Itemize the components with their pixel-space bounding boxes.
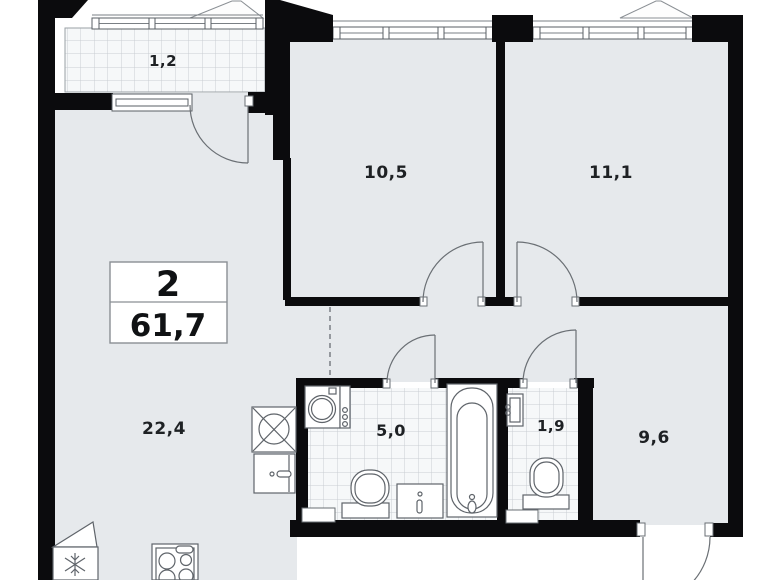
total-area-label: 61,7 — [130, 308, 207, 344]
wall-bottom-right — [710, 523, 743, 537]
bedroom2-area-label: 11,1 — [589, 163, 633, 183]
info-box: 2 61,7 — [110, 262, 227, 344]
washing-machine — [305, 386, 350, 428]
wall-bottom-band — [290, 520, 640, 537]
balcony-area-label: 1,2 — [149, 52, 177, 70]
wc-wall-niche — [506, 510, 538, 523]
rooms-count-label: 2 — [156, 265, 180, 305]
kitchen-sink — [252, 407, 296, 452]
wall-between-doors — [483, 297, 517, 306]
wall-left — [38, 18, 55, 580]
wall-under-balcony — [55, 93, 113, 110]
living-kitchen-area-label: 22,4 — [142, 419, 186, 439]
floor-plan: 2 61,7 1,2 10,5 11,1 22,4 5,0 1,9 9,6 — [0, 0, 780, 580]
bedroom1-area-label: 10,5 — [364, 163, 408, 183]
wall-bedroom2-bottom — [577, 297, 728, 306]
kitchen-cabinet — [254, 454, 295, 493]
floor-hall-room — [588, 300, 730, 525]
bathroom-area-label: 5,0 — [376, 421, 406, 440]
wall-wc-right — [578, 378, 593, 537]
floor-plan-svg: 2 61,7 1,2 10,5 11,1 22,4 5,0 1,9 9,6 — [0, 0, 780, 580]
sink-vanity — [397, 484, 443, 518]
wall-bedroom-partition — [496, 40, 505, 305]
wall-kitchen-bedroom1-b — [283, 158, 291, 300]
hall-area-label: 9,6 — [638, 428, 670, 448]
wall-kitchen-bedroom1-a — [273, 113, 290, 160]
bath-wall-niche — [302, 508, 335, 522]
floor-hallway — [288, 300, 595, 382]
wc-area-label: 1,9 — [537, 417, 565, 435]
wall-bedroom1-bottom — [285, 297, 423, 306]
stove — [152, 544, 198, 580]
wc-sink — [506, 394, 523, 426]
bathtub — [447, 384, 497, 517]
wall-right — [728, 15, 743, 537]
wall-between-windows — [492, 15, 533, 42]
